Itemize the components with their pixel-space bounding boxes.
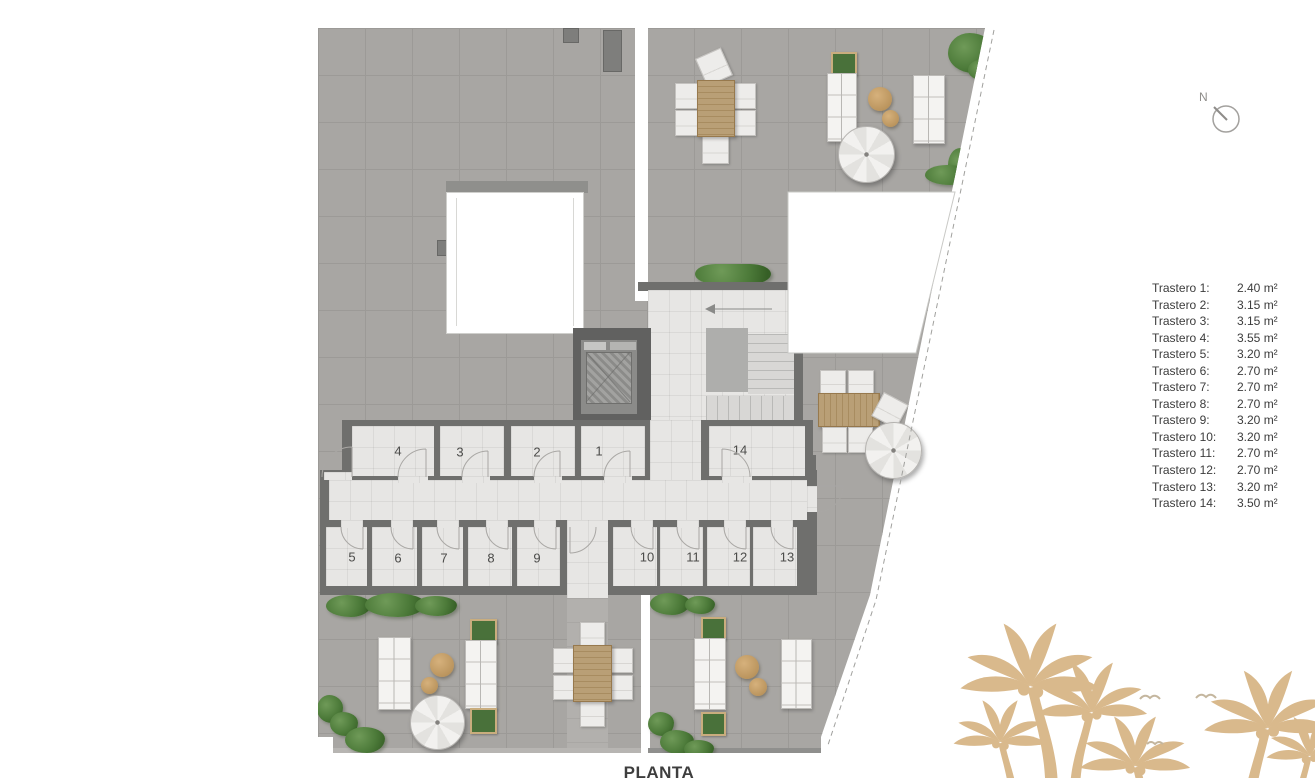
- legend-row: Trastero 4:3.55 m²: [1152, 330, 1292, 347]
- legend-row: Trastero 10:3.20 m²: [1152, 429, 1292, 446]
- legend-room-label: Trastero 13:: [1152, 479, 1237, 496]
- legend-room-label: Trastero 9:: [1152, 412, 1237, 429]
- plan-overlay-graphics: [0, 0, 1315, 778]
- legend-area-value: 3.20 m²: [1237, 346, 1292, 363]
- legend-area-value: 3.55 m²: [1237, 330, 1292, 347]
- legend-room-label: Trastero 6:: [1152, 363, 1237, 380]
- legend-rows: Trastero 1:2.40 m²Trastero 2:3.15 m²Tras…: [1152, 280, 1292, 512]
- legend-room-label: Trastero 1:: [1152, 280, 1237, 297]
- legend-room-label: Trastero 2:: [1152, 297, 1237, 314]
- legend-row: Trastero 9:3.20 m²: [1152, 412, 1292, 429]
- legend-area-value: 3.15 m²: [1237, 297, 1292, 314]
- legend-row: Trastero 2:3.15 m²: [1152, 297, 1292, 314]
- legend-row: Trastero 8:2.70 m²: [1152, 396, 1292, 413]
- plot-boundary-dashed-line: [827, 30, 994, 748]
- legend-row: Trastero 11:2.70 m²: [1152, 445, 1292, 462]
- north-indicator: [1213, 106, 1239, 132]
- legend-area-value: 3.20 m²: [1237, 429, 1292, 446]
- legend-room-label: Trastero 11:: [1152, 445, 1237, 462]
- door-swing-arcs: [322, 447, 843, 553]
- legend-room-label: Trastero 8:: [1152, 396, 1237, 413]
- legend-area-value: 2.40 m²: [1237, 280, 1292, 297]
- open-void: [788, 192, 955, 353]
- elevator-machinery-lines: [586, 352, 630, 402]
- storage-area-legend: Trastero 1:2.40 m²Trastero 2:3.15 m²Tras…: [1152, 280, 1292, 512]
- legend-row: Trastero 1:2.40 m²: [1152, 280, 1292, 297]
- legend-area-value: 2.70 m²: [1237, 445, 1292, 462]
- legend-room-label: Trastero 14:: [1152, 495, 1237, 512]
- legend-row: Trastero 12:2.70 m²: [1152, 462, 1292, 479]
- legend-area-value: 2.70 m²: [1237, 363, 1292, 380]
- legend-row: Trastero 13:3.20 m²: [1152, 479, 1292, 496]
- legend-area-value: 2.70 m²: [1237, 396, 1292, 413]
- legend-row: Trastero 14:3.50 m²: [1152, 495, 1292, 512]
- legend-area-value: 2.70 m²: [1237, 462, 1292, 479]
- legend-room-label: Trastero 12:: [1152, 462, 1237, 479]
- legend-row: Trastero 6:2.70 m²: [1152, 363, 1292, 380]
- legend-room-label: Trastero 7:: [1152, 379, 1237, 396]
- legend-room-label: Trastero 10:: [1152, 429, 1237, 446]
- palm-watermark: [954, 624, 1315, 778]
- legend-row: Trastero 5:3.20 m²: [1152, 346, 1292, 363]
- legend-room-label: Trastero 5:: [1152, 346, 1237, 363]
- plan-title: PLANTA CUBIERTA: [578, 763, 740, 778]
- legend-area-value: 3.15 m²: [1237, 313, 1292, 330]
- legend-area-value: 3.20 m²: [1237, 479, 1292, 496]
- north-label: N: [1199, 90, 1208, 104]
- legend-area-value: 2.70 m²: [1237, 379, 1292, 396]
- legend-row: Trastero 3:3.15 m²: [1152, 313, 1292, 330]
- stair-direction-arrow: [705, 304, 772, 314]
- legend-room-label: Trastero 4:: [1152, 330, 1237, 347]
- legend-row: Trastero 7:2.70 m²: [1152, 379, 1292, 396]
- roof-plan-page: 4321145678910111213: [0, 0, 1315, 778]
- legend-area-value: 3.20 m²: [1237, 412, 1292, 429]
- legend-room-label: Trastero 3:: [1152, 313, 1237, 330]
- legend-area-value: 3.50 m²: [1237, 495, 1292, 512]
